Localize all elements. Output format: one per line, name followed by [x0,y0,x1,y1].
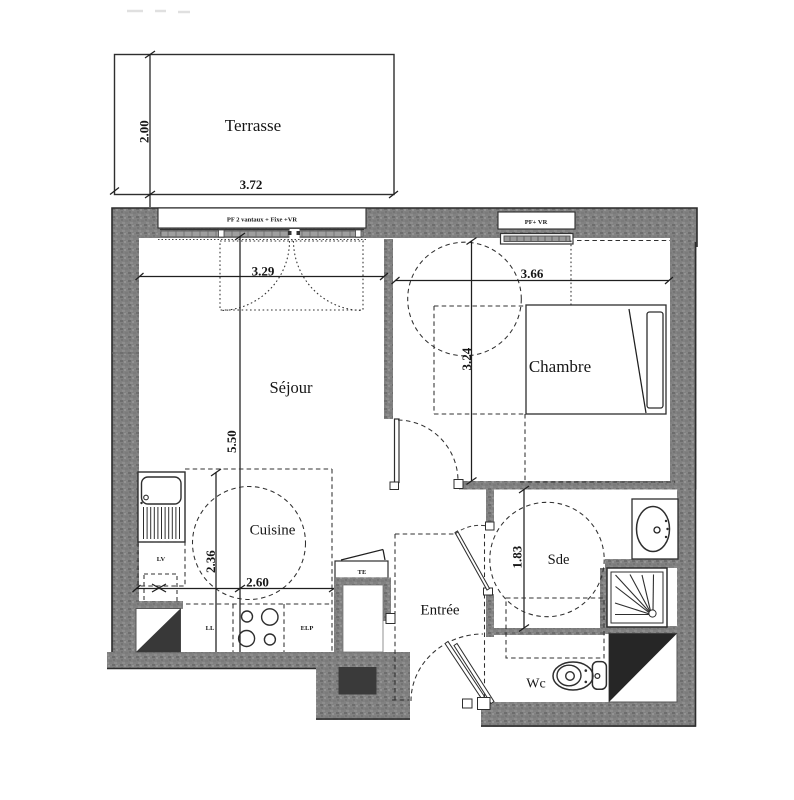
svg-text:PF 2 vantaux + Fixe +VR: PF 2 vantaux + Fixe +VR [227,217,297,224]
svg-text:Entrée: Entrée [420,603,459,619]
svg-text:PF+ VR: PF+ VR [525,219,548,226]
svg-text:3.29: 3.29 [252,264,275,279]
svg-text:Cuisine: Cuisine [250,523,296,539]
svg-text:TE: TE [358,569,367,576]
svg-text:2.60: 2.60 [246,575,269,590]
svg-text:LV: LV [157,556,166,563]
svg-text:3.72: 3.72 [240,177,263,192]
svg-text:Séjour: Séjour [269,378,313,397]
svg-text:Wc: Wc [526,677,545,692]
svg-text:2.36: 2.36 [203,550,218,573]
svg-text:ELP: ELP [301,625,314,632]
svg-text:5.50: 5.50 [224,430,239,453]
svg-text:3.24: 3.24 [459,347,474,370]
svg-text:Chambre: Chambre [529,357,591,376]
svg-text:2.00: 2.00 [137,120,152,143]
svg-text:1.83: 1.83 [510,545,525,568]
svg-text:Terrasse: Terrasse [225,116,281,135]
svg-text:LL: LL [206,625,215,632]
svg-text:Sde: Sde [548,552,570,568]
svg-text:3.66: 3.66 [521,266,544,281]
